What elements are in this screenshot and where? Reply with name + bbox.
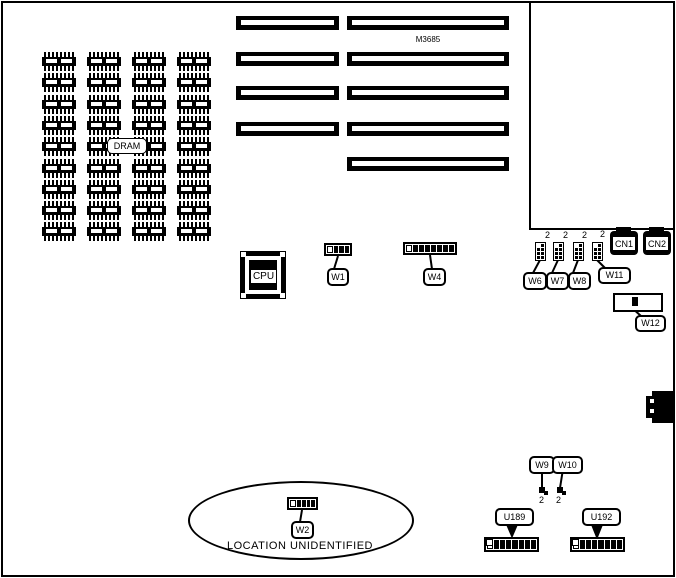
pin-cell (559, 244, 562, 247)
dram-chip (132, 159, 166, 178)
jumper-block-w1 (324, 243, 352, 256)
dram-chip (177, 137, 211, 156)
expansion-slot (347, 157, 509, 171)
jumper-block-w2 (287, 497, 318, 510)
pin-cell (519, 540, 524, 549)
pin-cell (425, 245, 430, 252)
location-unidentified-note: LOCATION UNIDENTIFIED (205, 540, 395, 552)
pin-cell (594, 248, 597, 251)
pin-cell (611, 540, 616, 549)
cn1-label-text: CN1 (615, 239, 633, 249)
jumper-label-w4: W4 (423, 268, 446, 286)
pin-cell (575, 248, 578, 251)
pin-cell (617, 540, 622, 549)
pin-cell (339, 246, 343, 253)
pin-cell (579, 244, 582, 247)
pin-cell (594, 244, 597, 247)
ic-label-u192-text: U192 (591, 513, 613, 522)
pin-cell (575, 244, 578, 247)
expansion-slot (236, 52, 339, 66)
dram-label-text: DRAM (114, 142, 141, 151)
pin-cell (555, 248, 558, 251)
pin-cell (586, 540, 591, 549)
dram-chip (42, 222, 76, 241)
pin-cell (579, 252, 582, 255)
dram-chip (177, 95, 211, 114)
dram-chip (42, 180, 76, 199)
dram-chip (177, 201, 211, 220)
pin-cell (334, 246, 338, 253)
dram-label: DRAM (107, 138, 147, 154)
jumper-label-w10: W10 (552, 456, 583, 474)
pin-cell (555, 244, 558, 247)
pin2-marker: 2 (600, 230, 605, 239)
pin-cell (592, 540, 597, 549)
dram-chip (42, 137, 76, 156)
jumper-block-w4 (403, 242, 457, 255)
pin-cell (419, 245, 424, 252)
pin-cell (537, 252, 540, 255)
board-model-label: M3685 (403, 35, 453, 44)
pin-cell (598, 252, 601, 255)
expansion-slot (236, 122, 339, 136)
edge-port-connector (652, 391, 674, 423)
dram-chip (87, 116, 121, 135)
dram-chip (132, 52, 166, 71)
expansion-slot (236, 86, 339, 100)
pin-cell (541, 244, 544, 247)
jumper-label-w7-text: W7 (551, 277, 565, 286)
dram-chip (132, 180, 166, 199)
dram-chip (177, 52, 211, 71)
pin-cell (297, 500, 301, 507)
pin-cell (506, 540, 511, 549)
ic-label-u189-text: U189 (504, 513, 526, 522)
ic-label-u189: U189 (495, 508, 534, 526)
board-outline-vertical (529, 2, 531, 230)
dram-chip (42, 159, 76, 178)
pin-cell (327, 246, 333, 253)
dram-chip (42, 201, 76, 220)
pin-cell (594, 252, 597, 255)
pin-cell (605, 540, 610, 549)
dram-chip (177, 116, 211, 135)
jumper-label-w6: W6 (523, 272, 547, 290)
pin-cell (537, 244, 540, 247)
dram-chip (87, 159, 121, 178)
dram-chip (42, 52, 76, 71)
pin-cell (537, 256, 540, 259)
jumper-label-w12-text: W12 (641, 319, 660, 328)
pin-cell (598, 248, 601, 251)
jumper-label-w9-text: W9 (535, 461, 549, 470)
pin-cell (290, 500, 296, 507)
pin-cell (555, 256, 558, 259)
pin-cell (437, 245, 442, 252)
pin2-marker: 2 (556, 496, 561, 505)
pin-cell (598, 256, 601, 259)
pin-cell (307, 500, 311, 507)
jumper-label-w11-text: W11 (606, 271, 624, 280)
dram-chip (87, 73, 121, 92)
cpu-label: CPU (251, 270, 276, 283)
pin-cell (555, 252, 558, 255)
dram-chip (177, 73, 211, 92)
jumper-w9-pins (544, 491, 548, 495)
dram-chip (132, 116, 166, 135)
pin-header-w7 (553, 242, 564, 261)
pin-cell (531, 540, 536, 549)
dram-chip (87, 180, 121, 199)
expansion-slot (347, 52, 509, 66)
pin-cell (594, 256, 597, 259)
edge-port-hole (650, 409, 654, 413)
pin-cell (406, 245, 412, 252)
jumper-label-w4-text: W4 (428, 273, 442, 282)
pin-cell (413, 245, 418, 252)
pin-cell (541, 248, 544, 251)
jumper-label-w1: W1 (327, 268, 349, 286)
edge-port-hole (650, 399, 654, 403)
jumper-label-w7: W7 (546, 272, 569, 290)
pin-cell (579, 248, 582, 251)
pin-header-w8 (573, 242, 584, 261)
jumper-w10-pins (562, 491, 566, 495)
ic-label-u192: U192 (582, 508, 621, 526)
cpu-socket: CPU (240, 251, 286, 299)
jumper-label-w12: W12 (635, 315, 666, 332)
jumper-label-w10-text: W10 (558, 461, 577, 470)
motherboard-diagram: M3685 DRAM CPU W1 W4 2 2 2 2 W6 W7 W8 W1… (0, 0, 676, 578)
dram-chip (42, 116, 76, 135)
connector-line-w4 (430, 255, 432, 269)
pin-cell (500, 540, 505, 549)
dram-chip (132, 73, 166, 92)
expansion-slot (236, 16, 339, 30)
pin-cell (598, 540, 603, 549)
pin-cell (580, 540, 585, 549)
jumper-label-w2-text: W2 (296, 526, 310, 535)
cn2-label: CN2 (645, 236, 669, 251)
pin-cell (559, 252, 562, 255)
jumper-label-w6-text: W6 (528, 277, 542, 286)
expansion-slot (347, 86, 509, 100)
jumper-label-w8: W8 (568, 272, 591, 290)
dram-chip (177, 180, 211, 199)
switch-block-w12 (613, 293, 663, 312)
pin-cell (579, 256, 582, 259)
jumper-label-w8-text: W8 (573, 277, 587, 286)
dram-chip (132, 95, 166, 114)
pin-cell (541, 256, 544, 259)
pin-cell (559, 256, 562, 259)
dram-chip (177, 159, 211, 178)
pin2-marker: 2 (563, 231, 568, 240)
pin-cell (431, 245, 436, 252)
pin-cell (537, 248, 540, 251)
dram-chip (42, 73, 76, 92)
connector-cn1: CN1 (610, 231, 638, 255)
ic-chip-u192 (570, 537, 625, 552)
pin-cell (449, 245, 454, 252)
pin2-marker: 2 (545, 231, 550, 240)
pin-header-w11 (592, 242, 603, 261)
pin-cell (575, 252, 578, 255)
ic-chip-u189 (484, 537, 539, 552)
pin-cell (345, 246, 349, 253)
pin-cell (494, 540, 499, 549)
pin-cell (559, 248, 562, 251)
pin-cell (302, 500, 306, 507)
connector-cn2: CN2 (643, 231, 671, 255)
dram-chip (132, 201, 166, 220)
dram-chip (87, 52, 121, 71)
dram-chip (87, 95, 121, 114)
dram-chip (87, 222, 121, 241)
jumper-label-w2: W2 (291, 521, 314, 539)
pin1-marker (486, 539, 493, 546)
dram-chip (42, 95, 76, 114)
pin1-marker (572, 539, 579, 546)
pin-cell (598, 244, 601, 247)
dram-chip (177, 222, 211, 241)
dram-chip (87, 201, 121, 220)
dram-chip (132, 222, 166, 241)
pin-cell (525, 540, 530, 549)
jumper-label-w11: W11 (598, 267, 631, 284)
pin-cell (575, 256, 578, 259)
w12-switch-position (632, 297, 638, 306)
pin-cell (512, 540, 517, 549)
jumper-label-w1-text: W1 (331, 273, 345, 282)
pin-cell (311, 500, 315, 507)
cn2-label-text: CN2 (648, 239, 666, 249)
pin2-marker: 2 (539, 496, 544, 505)
cn1-label: CN1 (612, 236, 636, 251)
pin2-marker: 2 (582, 231, 587, 240)
pin-header-w6 (535, 242, 546, 261)
expansion-slot (347, 16, 509, 30)
pin-cell (541, 252, 544, 255)
pin-cell (443, 245, 448, 252)
expansion-slot (347, 122, 509, 136)
